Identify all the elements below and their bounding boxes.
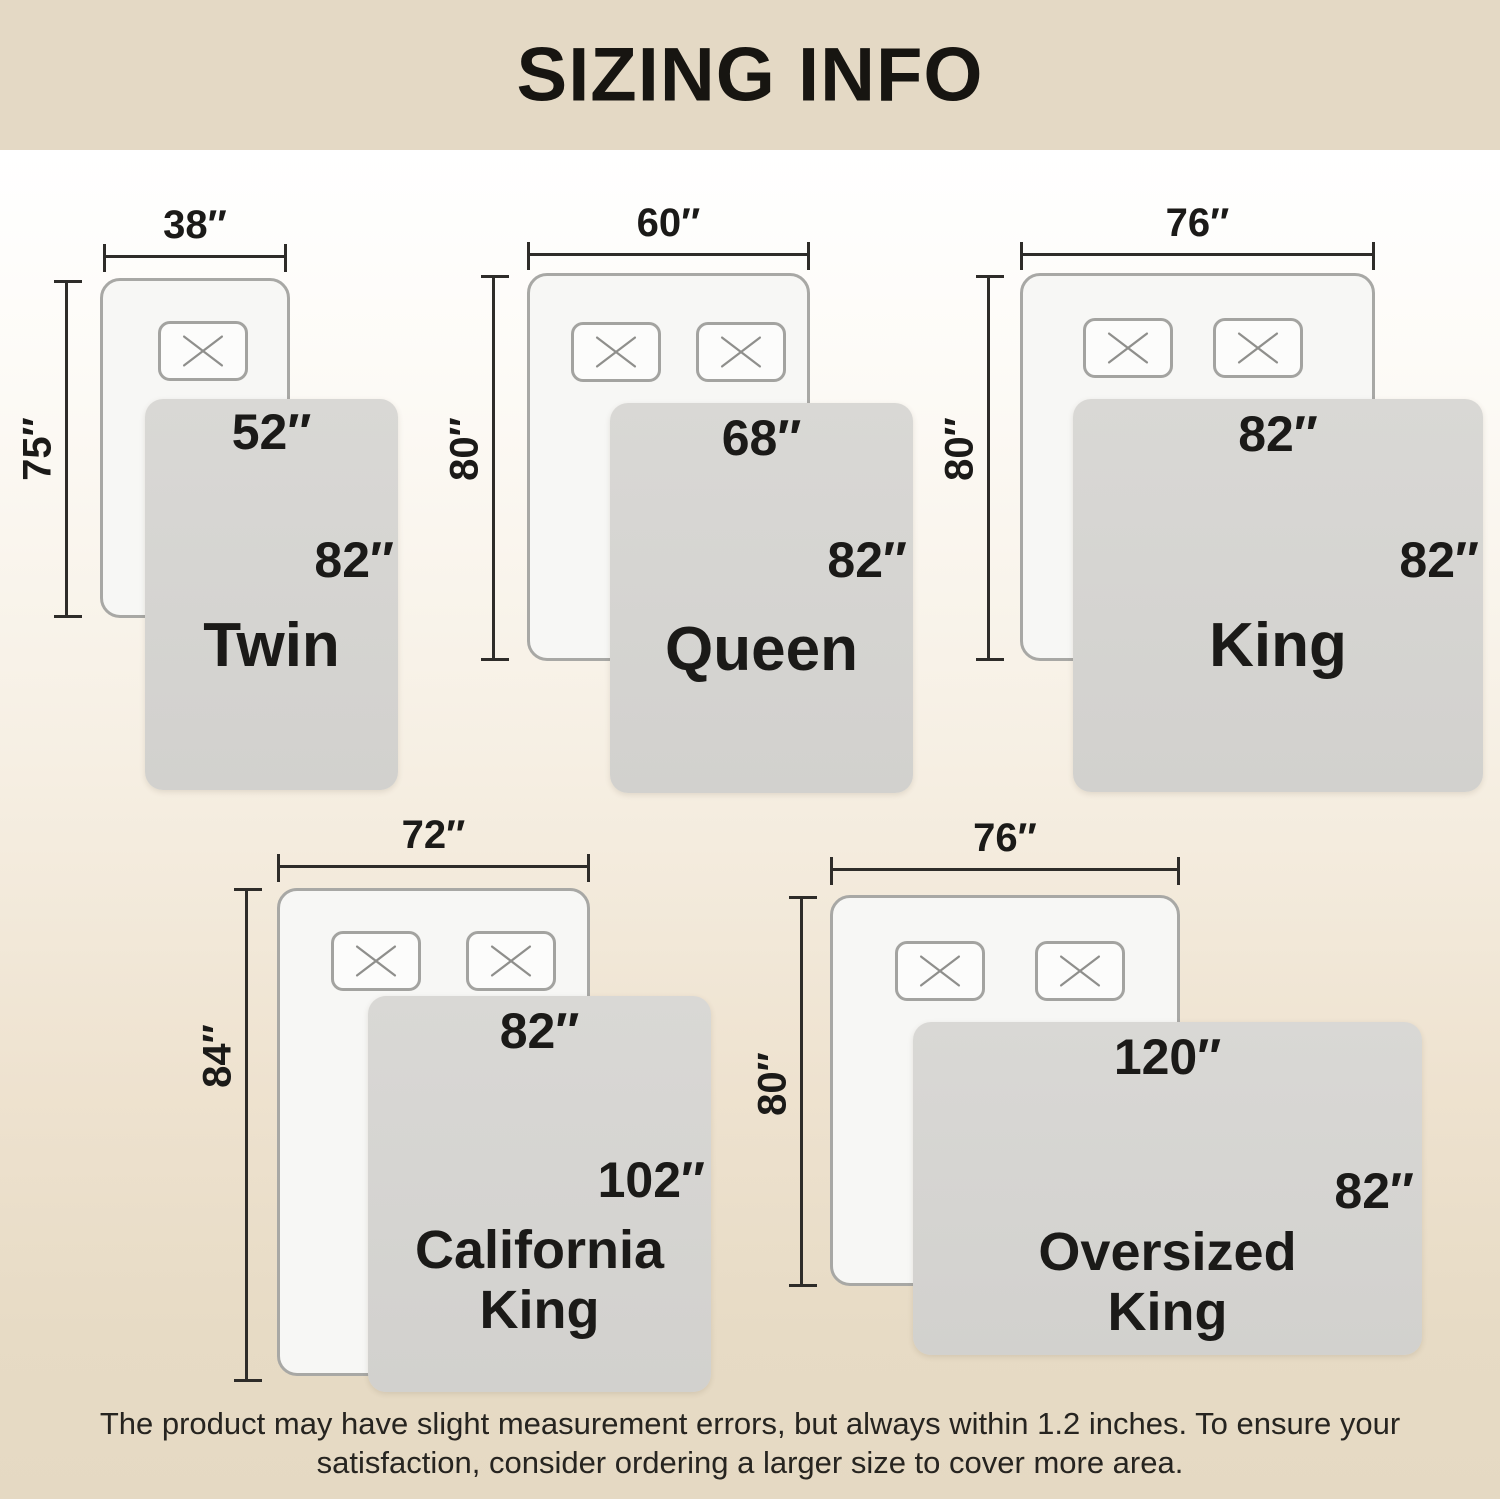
pillow xyxy=(1035,941,1125,1001)
size-diagram-oversized-king: 76″ 80″ 120″ 82″ Oversized King xyxy=(0,0,1500,1499)
bed-width-dimension: 76″ xyxy=(830,868,1180,871)
blanket-length-label: 82″ xyxy=(1334,1162,1414,1220)
bed-length-dimension: 80″ xyxy=(800,896,803,1287)
pillow-x-icon xyxy=(898,944,982,998)
disclaimer-text: The product may have slight measurement … xyxy=(0,1404,1500,1482)
bed-length-label: 80″ xyxy=(751,1052,796,1116)
disclaimer-line-1: The product may have slight measurement … xyxy=(0,1404,1500,1443)
sizing-infographic: SIZING INFO 38″ 75″ 52″ 82″ Twin 60″ 80″ xyxy=(0,0,1500,1499)
pillow xyxy=(895,941,985,1001)
pillow-x-icon xyxy=(1038,944,1122,998)
bed-width-label: 76″ xyxy=(973,816,1037,861)
blanket-overlay: 120″ 82″ Oversized King xyxy=(913,1022,1422,1355)
blanket-width-label: 120″ xyxy=(1114,1028,1221,1086)
size-name-label: Oversized King xyxy=(998,1222,1338,1342)
disclaimer-line-2: satisfaction, consider ordering a larger… xyxy=(0,1443,1500,1482)
